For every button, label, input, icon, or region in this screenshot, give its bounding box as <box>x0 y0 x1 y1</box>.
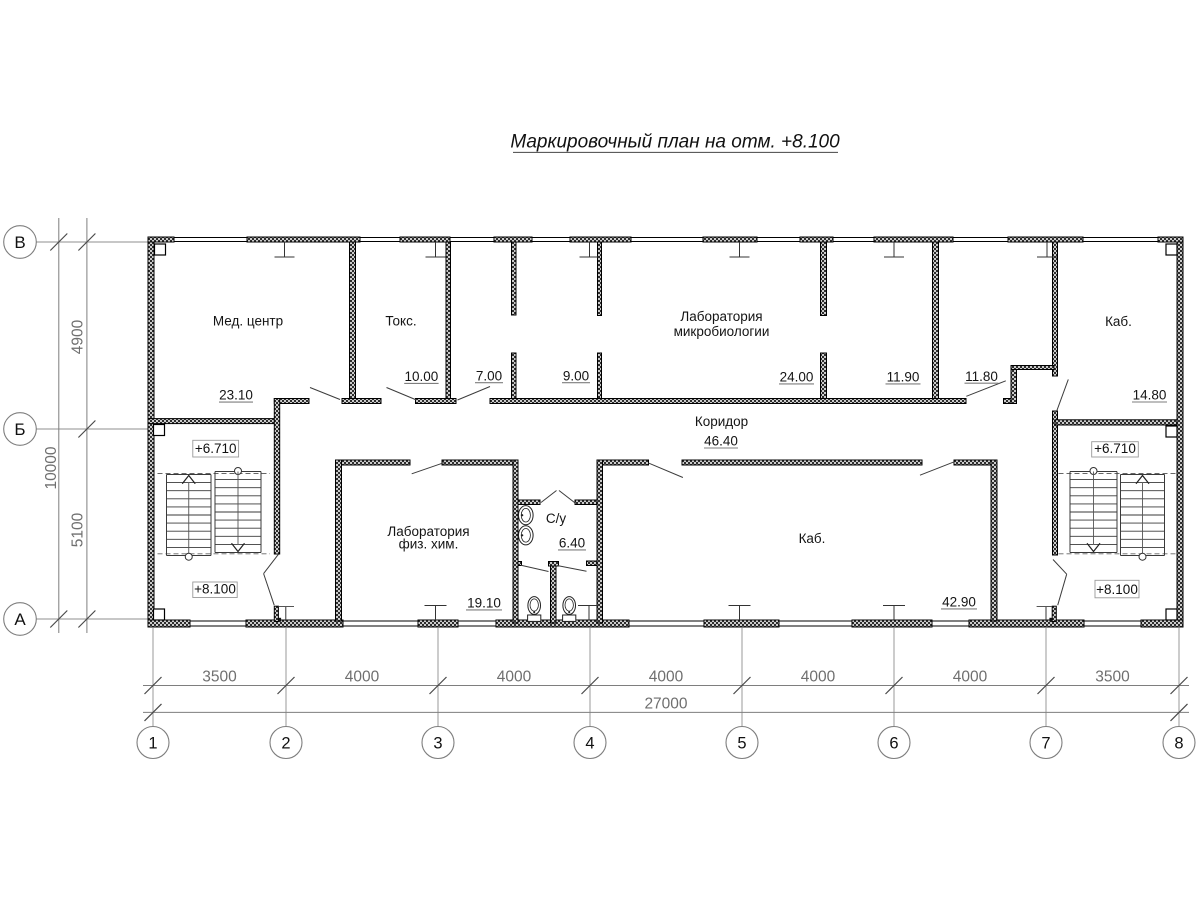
svg-text:4900: 4900 <box>69 319 86 354</box>
svg-text:+6.710: +6.710 <box>1094 441 1136 456</box>
svg-text:6.40: 6.40 <box>559 536 585 551</box>
svg-text:В: В <box>14 233 25 252</box>
svg-text:1: 1 <box>148 734 157 752</box>
svg-text:5100: 5100 <box>69 512 86 547</box>
svg-text:4000: 4000 <box>649 669 684 686</box>
svg-text:23.10: 23.10 <box>219 388 253 403</box>
svg-text:4000: 4000 <box>497 669 532 686</box>
svg-text:4000: 4000 <box>345 669 380 686</box>
svg-text:Б: Б <box>14 420 25 439</box>
svg-text:Лаборатория: Лаборатория <box>680 309 762 324</box>
svg-text:6: 6 <box>889 734 898 752</box>
svg-text:2: 2 <box>281 734 290 752</box>
svg-text:11.80: 11.80 <box>965 369 998 384</box>
svg-text:Маркировочный план на отм. +8.: Маркировочный план на отм. +8.100 <box>510 132 840 153</box>
svg-text:Токс.: Токс. <box>385 314 416 329</box>
svg-text:+8.100: +8.100 <box>1096 582 1138 597</box>
svg-text:10.00: 10.00 <box>405 369 439 384</box>
svg-text:+8.100: +8.100 <box>194 582 236 597</box>
svg-text:27000: 27000 <box>644 696 687 713</box>
svg-text:10000: 10000 <box>43 446 60 489</box>
svg-text:11.90: 11.90 <box>887 370 920 385</box>
svg-text:46.40: 46.40 <box>704 434 738 449</box>
svg-text:С/у: С/у <box>546 511 567 526</box>
svg-text:Каб.: Каб. <box>799 531 826 546</box>
svg-text:Каб.: Каб. <box>1105 314 1132 329</box>
svg-text:+6.710: +6.710 <box>195 441 237 456</box>
svg-text:4: 4 <box>585 734 594 752</box>
svg-text:4000: 4000 <box>801 669 836 686</box>
svg-text:микробиологии: микробиологии <box>674 324 770 339</box>
svg-text:3500: 3500 <box>1095 669 1130 686</box>
svg-text:42.90: 42.90 <box>942 595 976 610</box>
svg-text:14.80: 14.80 <box>1133 388 1167 403</box>
svg-text:24.00: 24.00 <box>780 370 814 385</box>
svg-text:7: 7 <box>1041 734 1050 752</box>
svg-text:Мед. центр: Мед. центр <box>213 314 283 329</box>
svg-text:3: 3 <box>433 734 442 752</box>
svg-text:физ. хим.: физ. хим. <box>399 537 459 552</box>
svg-text:5: 5 <box>737 734 746 752</box>
svg-text:Коридор: Коридор <box>695 414 748 429</box>
svg-text:А: А <box>14 610 26 629</box>
svg-text:9.00: 9.00 <box>563 368 589 383</box>
svg-text:19.10: 19.10 <box>467 596 501 611</box>
svg-text:3500: 3500 <box>202 669 237 686</box>
svg-text:7.00: 7.00 <box>476 368 502 383</box>
svg-text:8: 8 <box>1174 734 1183 752</box>
svg-text:4000: 4000 <box>953 669 988 686</box>
